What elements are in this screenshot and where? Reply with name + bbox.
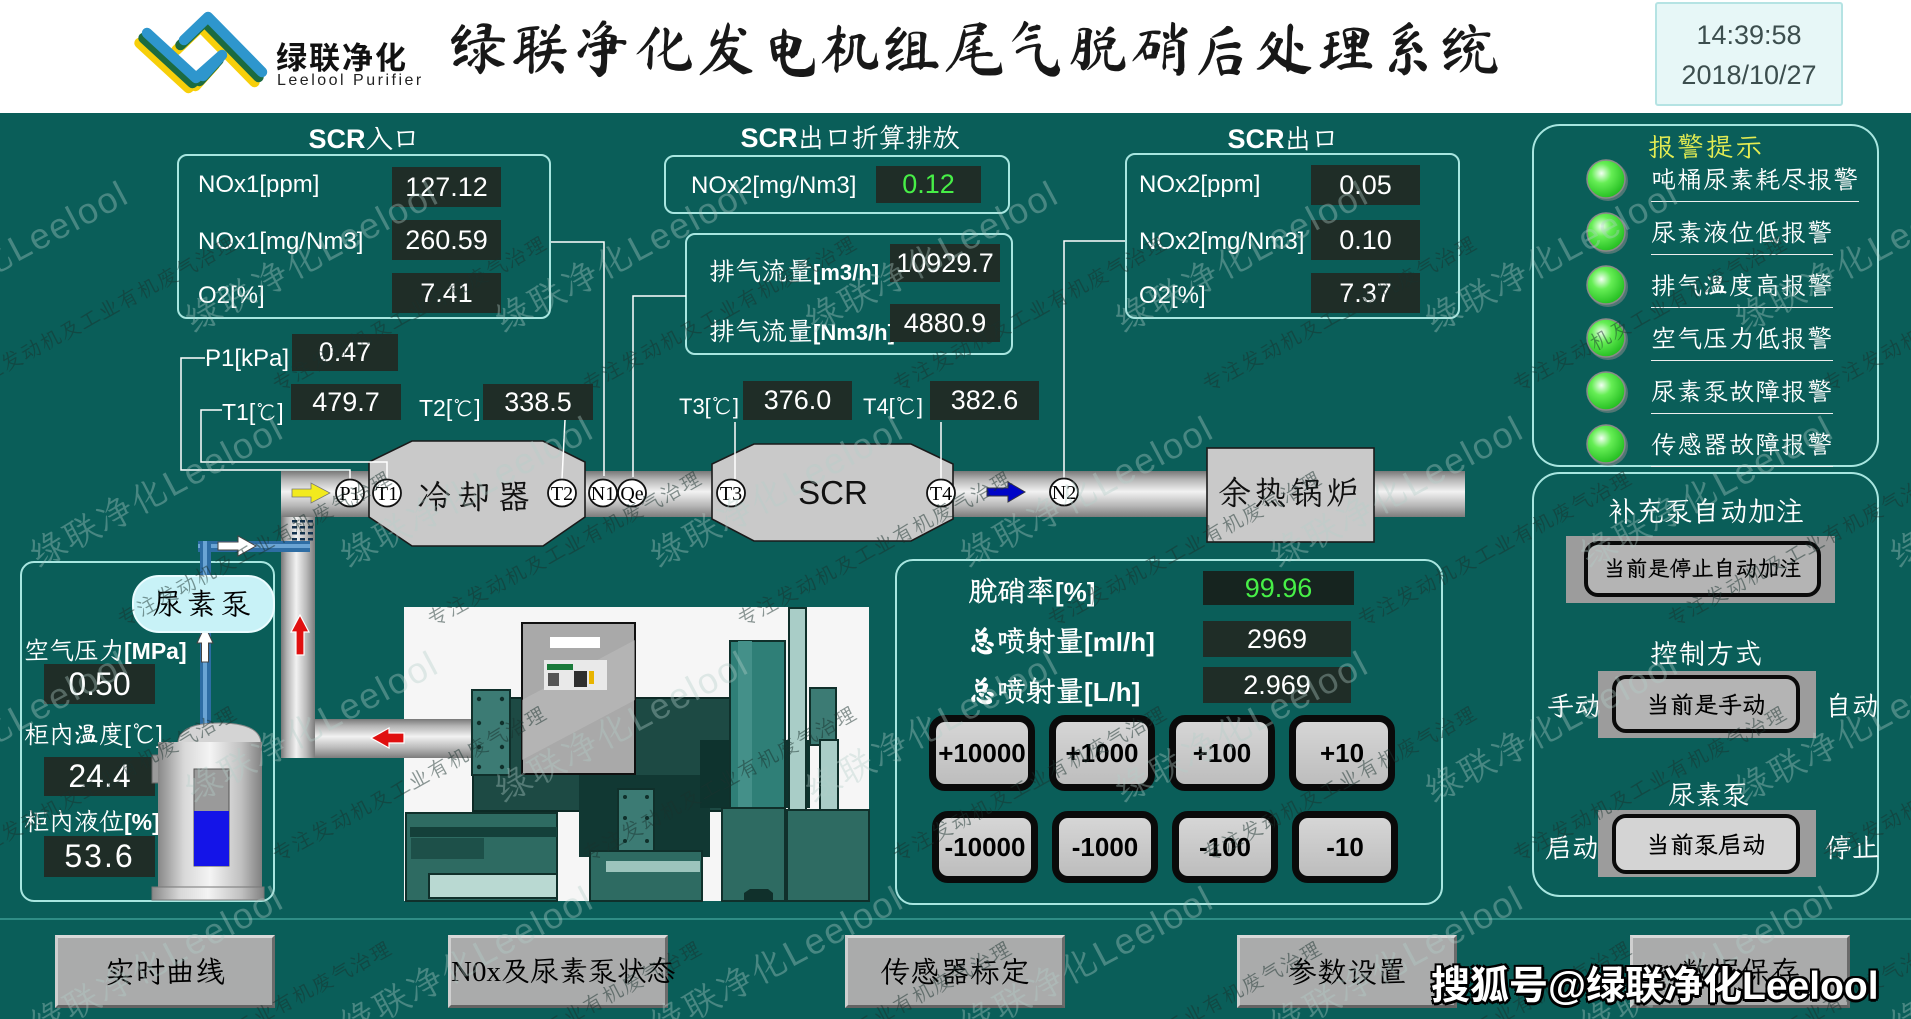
svg-text:Qe: Qe	[620, 483, 643, 505]
svg-text:P1: P1	[339, 483, 360, 505]
svg-text:N1: N1	[591, 483, 615, 505]
svg-text:T1: T1	[376, 483, 398, 505]
svg-text:N2: N2	[1052, 482, 1076, 504]
svg-text:T2: T2	[551, 483, 573, 505]
svg-text:余热锅炉: 余热锅炉	[1218, 471, 1362, 514]
svg-text:冷却器: 冷却器	[417, 473, 537, 518]
svg-text:SCR: SCR	[798, 474, 868, 511]
svg-text:T4: T4	[930, 483, 952, 505]
svg-text:T3: T3	[720, 483, 742, 505]
